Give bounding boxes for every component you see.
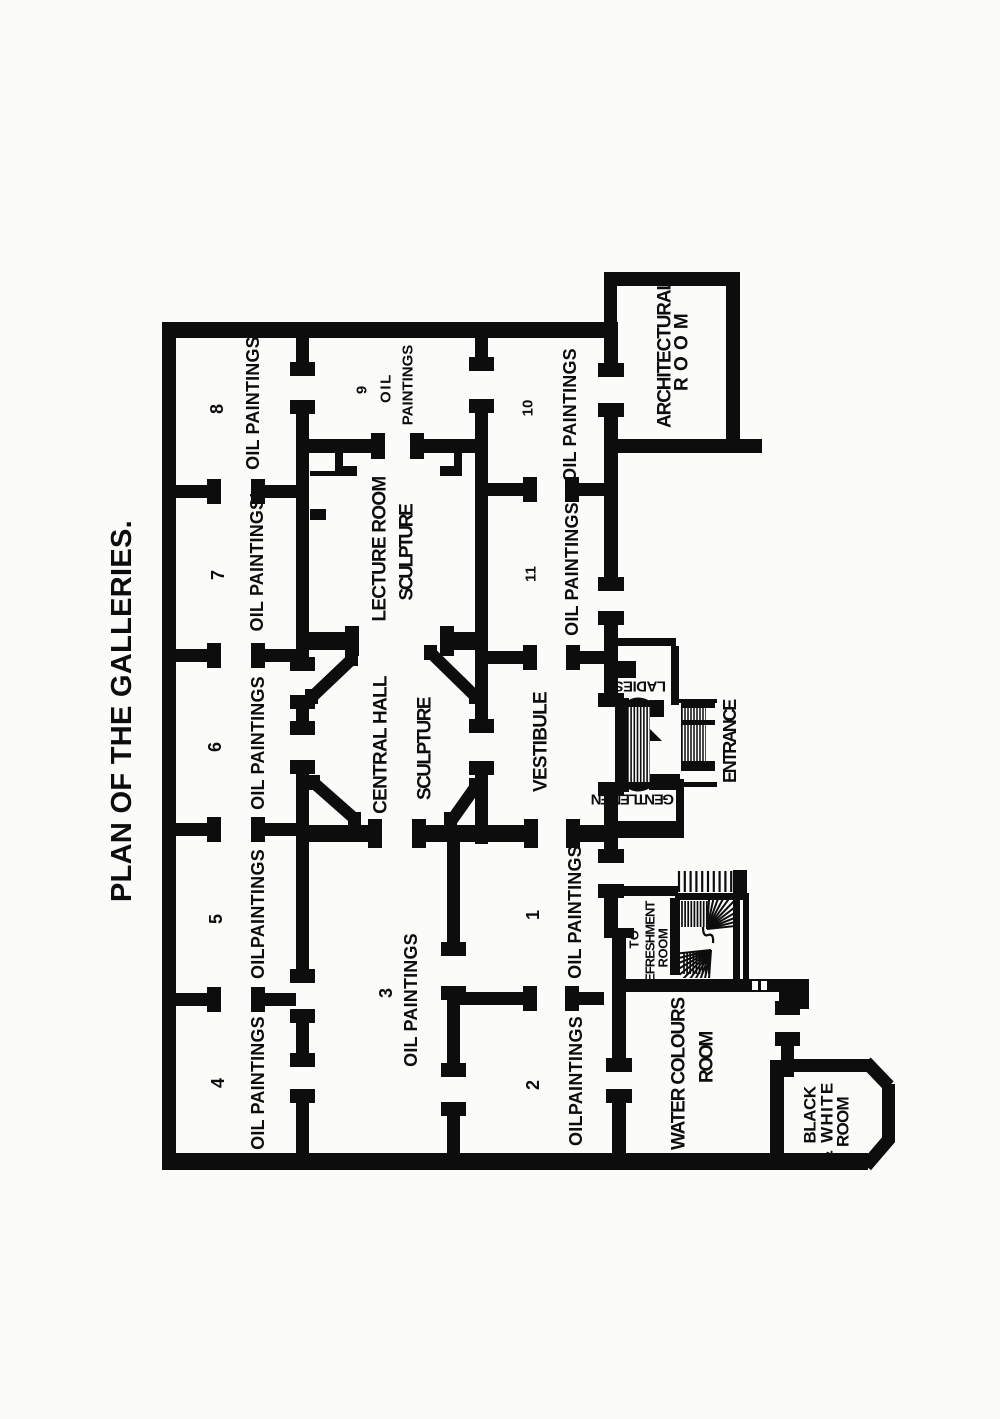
svg-text:10: 10 xyxy=(520,400,537,417)
svg-text:OILPAINTINGS: OILPAINTINGS xyxy=(566,1016,586,1146)
svg-text:OILPAINTINGS: OILPAINTINGS xyxy=(248,849,268,979)
svg-text:9: 9 xyxy=(354,386,371,394)
svg-text:CENTRAL HALL: CENTRAL HALL xyxy=(371,675,392,814)
svg-text:PAINTINGS: PAINTINGS xyxy=(400,345,417,426)
svg-text:VESTIBULE: VESTIBULE xyxy=(531,692,552,792)
svg-text:8: 8 xyxy=(207,404,227,414)
svg-text:ENTRANCE: ENTRANCE xyxy=(720,699,740,783)
svg-text:11: 11 xyxy=(523,566,540,582)
svg-text:PLAN OF THE GALLERIES.: PLAN OF THE GALLERIES. xyxy=(106,520,138,902)
svg-text:3: 3 xyxy=(376,988,396,998)
svg-text:OIL PAINTINGS: OIL PAINTINGS xyxy=(562,502,582,636)
svg-text:OIL PAINTINGS: OIL PAINTINGS xyxy=(248,1016,268,1150)
svg-text:OIL PAINTINGS: OIL PAINTINGS xyxy=(401,933,421,1067)
svg-text:SCULPTURE: SCULPTURE xyxy=(415,697,436,800)
svg-text:2: 2 xyxy=(523,1080,543,1090)
svg-text:1: 1 xyxy=(523,910,543,920)
svg-text:ROOM: ROOM xyxy=(656,928,671,967)
svg-text:OIL PAINTINGS: OIL PAINTINGS xyxy=(560,348,580,482)
svg-text:GENTLEMEN: GENTLEMEN xyxy=(591,791,674,808)
svg-text:4: 4 xyxy=(208,1078,228,1088)
svg-text:ROOM: ROOM xyxy=(672,307,693,391)
svg-text:TO: TO xyxy=(627,930,642,949)
svg-text:OIL PAINTINGS’: OIL PAINTINGS’ xyxy=(247,493,267,632)
svg-text:SCULPTURE: SCULPTURE xyxy=(397,504,418,601)
svg-text:6: 6 xyxy=(205,742,225,752)
svg-text:ROOM: ROOM xyxy=(697,1032,718,1083)
svg-text:LECTURE ROOM: LECTURE ROOM xyxy=(370,477,391,622)
svg-text:ROOM: ROOM xyxy=(834,1096,853,1147)
svg-text:WATER COLOURS: WATER COLOURS xyxy=(669,997,690,1150)
svg-text:7: 7 xyxy=(208,570,228,580)
svg-text:OIL PAINTINGS: OIL PAINTINGS xyxy=(243,336,263,470)
svg-text:OIL: OIL xyxy=(378,373,395,403)
svg-text:OIL PAINTINGS: OIL PAINTINGS xyxy=(565,845,585,979)
svg-text:OIL PAINTINGS: OIL PAINTINGS xyxy=(248,676,268,810)
svg-text:LADIES: LADIES xyxy=(614,678,667,695)
svg-text:5: 5 xyxy=(206,914,226,924)
